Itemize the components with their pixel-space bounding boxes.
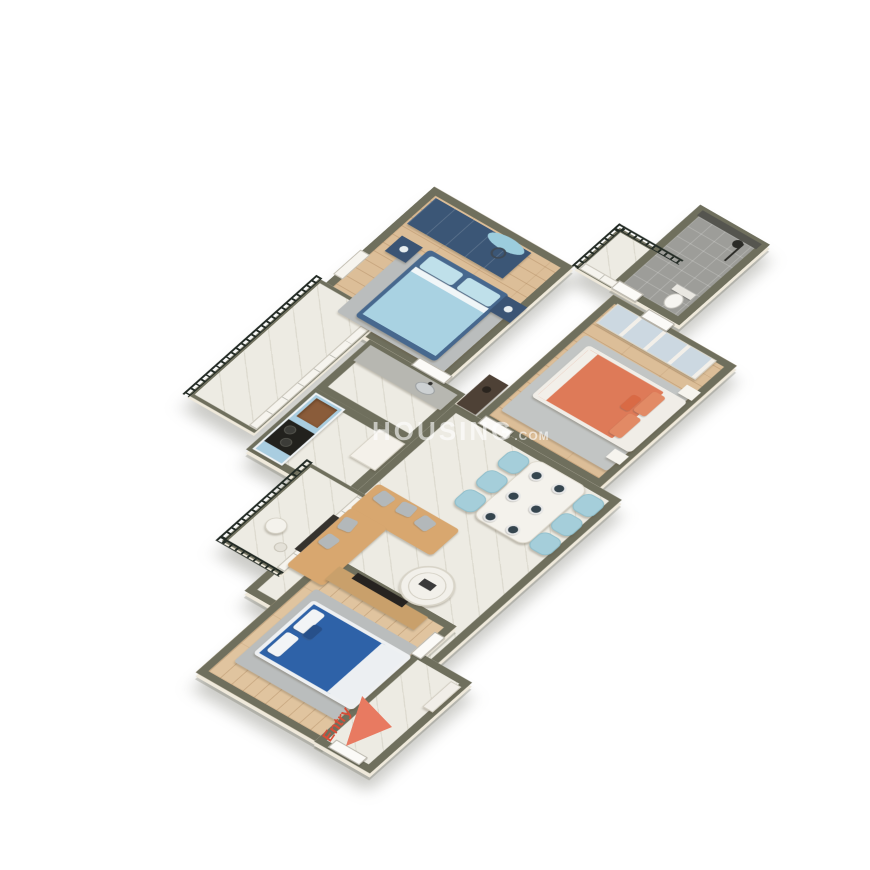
watermark-suffix: .COM [514,429,549,443]
housing-watermark: HOUSING.COM [372,416,550,447]
watermark-brand: HOUSING [372,416,514,446]
floor-plan-scene [0,97,870,825]
